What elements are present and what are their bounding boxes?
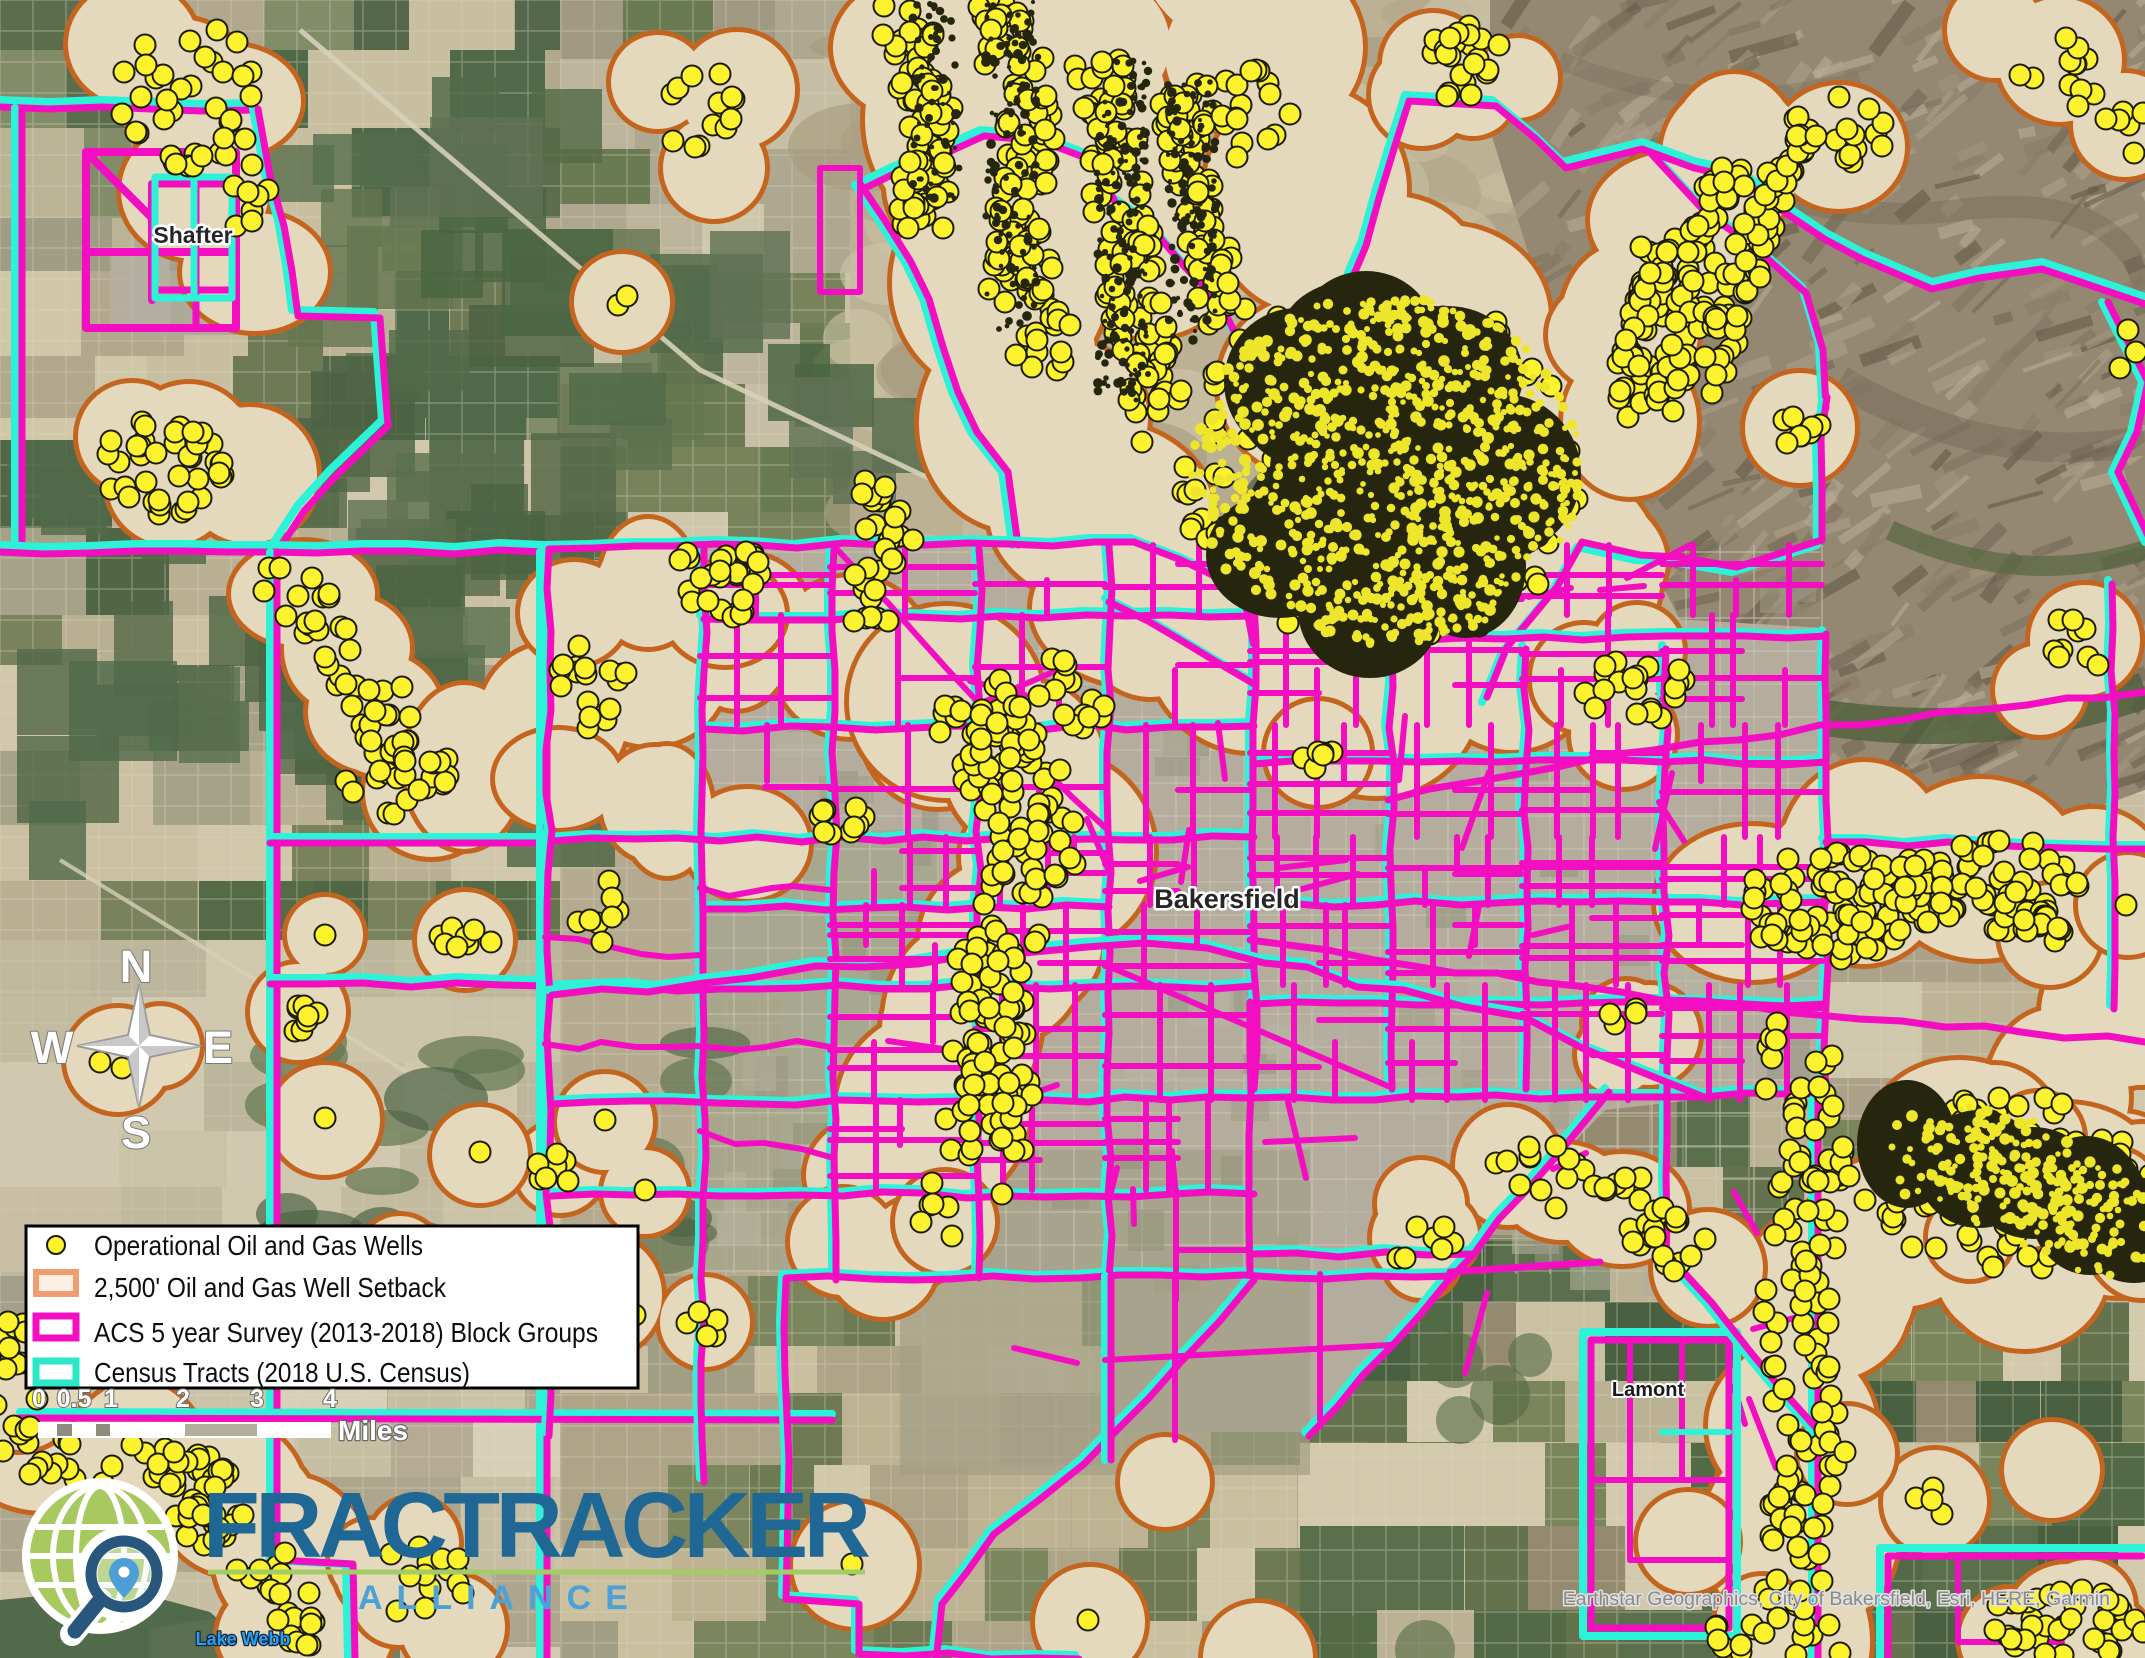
svg-text:0: 0: [32, 1385, 46, 1413]
svg-text:ACS 5 year Survey (2013-2018): ACS 5 year Survey (2013-2018) Block Grou…: [94, 1317, 598, 1348]
svg-text:FRACTRACKER: FRACTRACKER: [203, 1473, 870, 1577]
svg-text:Miles: Miles: [338, 1415, 408, 1446]
svg-text:Operational Oil and Gas Wells: Operational Oil and Gas Wells: [94, 1230, 423, 1261]
svg-text:ALLIANCE: ALLIANCE: [358, 1579, 642, 1617]
svg-text:N: N: [120, 941, 153, 992]
svg-text:E: E: [203, 1022, 233, 1073]
svg-text:Census Tracts (2018 U.S. Censu: Census Tracts (2018 U.S. Census): [94, 1357, 470, 1388]
svg-text:Bakersfield: Bakersfield: [1154, 884, 1300, 914]
svg-text:S: S: [121, 1107, 151, 1158]
svg-text:Earthstar Geographics, City of: Earthstar Geographics, City of Bakersfie…: [1563, 1588, 2110, 1610]
svg-text:4: 4: [323, 1385, 337, 1413]
svg-text:3: 3: [250, 1385, 264, 1413]
svg-text:1: 1: [104, 1385, 118, 1413]
svg-text:2,500' Oil and Gas Well Setbac: 2,500' Oil and Gas Well Setback: [94, 1272, 447, 1303]
svg-text:Lamont: Lamont: [1612, 1379, 1685, 1401]
svg-text:Shafter: Shafter: [153, 222, 232, 248]
svg-text:W: W: [31, 1022, 74, 1073]
svg-text:Lake Webb: Lake Webb: [196, 1629, 291, 1649]
svg-text:0.5: 0.5: [57, 1385, 92, 1413]
svg-text:2: 2: [176, 1385, 190, 1413]
